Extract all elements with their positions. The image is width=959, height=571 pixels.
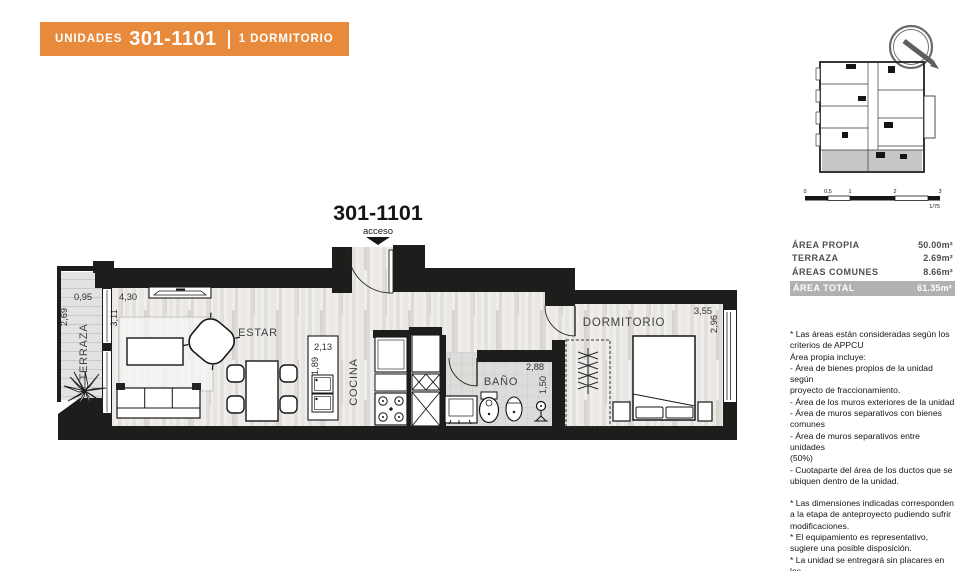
scale-tick: 3 (938, 189, 941, 195)
vanity-sink (445, 396, 477, 424)
nightstand (613, 402, 630, 421)
scale-tick: 2 (893, 189, 896, 195)
duct-shaft (412, 335, 440, 426)
dim-estar-width: 4,30 (119, 292, 137, 302)
area-table: ÁREA PROPIA 50.00m² TERRAZA 2.69m² ÁREAS… (790, 238, 955, 296)
note-line: - Área de muros separativos entre unidad… (790, 431, 957, 454)
area-total-row: ÁREA TOTAL 61.35m² (790, 281, 955, 296)
kitchen-cabinet (375, 374, 407, 391)
plan-sheet: UNIDADES 301-1101 1 DORMITORIO (0, 0, 959, 571)
area-label: ÁREA PROPIA (792, 240, 860, 250)
plan-title: 301-1101 (333, 201, 423, 225)
fridge (375, 337, 407, 372)
dim-terraza-depth: 2,69 (59, 308, 69, 326)
dining-chair (227, 396, 244, 413)
dim-cocina-width: 2,13 (314, 342, 332, 352)
area-value: 50.00m² (918, 240, 953, 250)
area-total-label: ÁREA TOTAL (793, 283, 855, 293)
note-line: - Cuotaparte del área de los ductos que … (790, 465, 957, 476)
note-line: proyecto de fraccionamiento. (790, 385, 957, 396)
note-line: Área propia incluye: (790, 352, 957, 363)
room-label-dormitorio: DORMITORIO (583, 317, 666, 329)
note-line: sugiere una posible disposición. (790, 543, 957, 554)
scale-tick: 0,5 (824, 189, 832, 195)
access-label: acceso (363, 226, 393, 237)
note-line: - Área de bienes propios de la unidad se… (790, 363, 957, 386)
toilet (480, 392, 499, 423)
area-row: TERRAZA 2.69m² (790, 252, 955, 266)
note-line: - Área de muros separativos con bienes (790, 408, 957, 419)
sofa (116, 383, 201, 418)
area-label: TERRAZA (792, 253, 839, 263)
kitchen-sink (312, 375, 333, 412)
notes-block: * Las áreas están consideradas según los… (790, 329, 957, 571)
access-arrow-icon (366, 237, 390, 245)
area-row: ÁREAS COMUNES 8.66m² (790, 265, 955, 279)
key-plan-detail (842, 64, 907, 159)
room-label-estar: ESTAR (238, 327, 278, 339)
dim-cocina-depth: 1,89 (310, 357, 320, 375)
note-line: modificaciones. (790, 521, 957, 532)
note-line: * Las áreas están consideradas según los (790, 329, 957, 340)
dining-chair (280, 396, 297, 413)
note-line: criterios de APPCU (790, 340, 957, 351)
note-line: * La unidad se entregará sin placares en… (790, 555, 957, 571)
dining-table (246, 361, 278, 421)
note-line: (50%) (790, 453, 957, 464)
terrace-door-window (103, 289, 111, 413)
dim-dormitorio-width: 3,55 (694, 306, 712, 316)
dim-bano-depth: 1,50 (538, 376, 548, 394)
stove (375, 393, 407, 425)
dim-estar-depth: 3,11 (109, 309, 119, 326)
area-value: 8.66m² (923, 267, 953, 277)
note-line: a la etapa de anteproyecto pudiendo sufr… (790, 509, 957, 520)
note-line: ubiquen dentro de la unidad. (790, 476, 957, 487)
dining-chair (280, 365, 297, 382)
note-line: * Las dimensiones indicadas corresponden (790, 498, 957, 509)
room-label-terraza: TERRAZA (78, 324, 90, 381)
room-label-bano: BAÑO (484, 375, 518, 388)
area-value: 2.69m² (923, 253, 953, 263)
dining-chair (227, 365, 244, 382)
scale-ratio: 1/75 (929, 204, 940, 210)
key-plan (816, 62, 935, 172)
note-line: comunes (790, 419, 957, 430)
notes-spacer (790, 487, 957, 498)
bedroom-window (724, 310, 736, 402)
note-line: * El equipamiento es representativo, (790, 532, 957, 543)
room-label-cocina: COCINA (348, 358, 360, 406)
scale-tick: 1 (848, 189, 851, 195)
tv-unit (149, 287, 211, 298)
bed (633, 336, 695, 420)
area-label: ÁREAS COMUNES (792, 267, 879, 277)
dim-bano-width: 2,88 (526, 362, 544, 372)
note-line: - Área de los muros exteriores de la uni… (790, 397, 957, 408)
scale-tick: 0 (803, 189, 806, 195)
scale-bar: 0 0,5 1 2 3 1/75 (803, 189, 941, 210)
bidet (506, 397, 522, 421)
dim-dormitorio-depth: 2,96 (709, 315, 719, 333)
area-total-value: 61.35m² (917, 283, 952, 293)
area-row: ÁREA PROPIA 50.00m² (790, 238, 955, 252)
dim-terraza-width: 0,95 (74, 292, 92, 302)
coffee-table (127, 338, 183, 365)
nightstand (698, 402, 712, 421)
